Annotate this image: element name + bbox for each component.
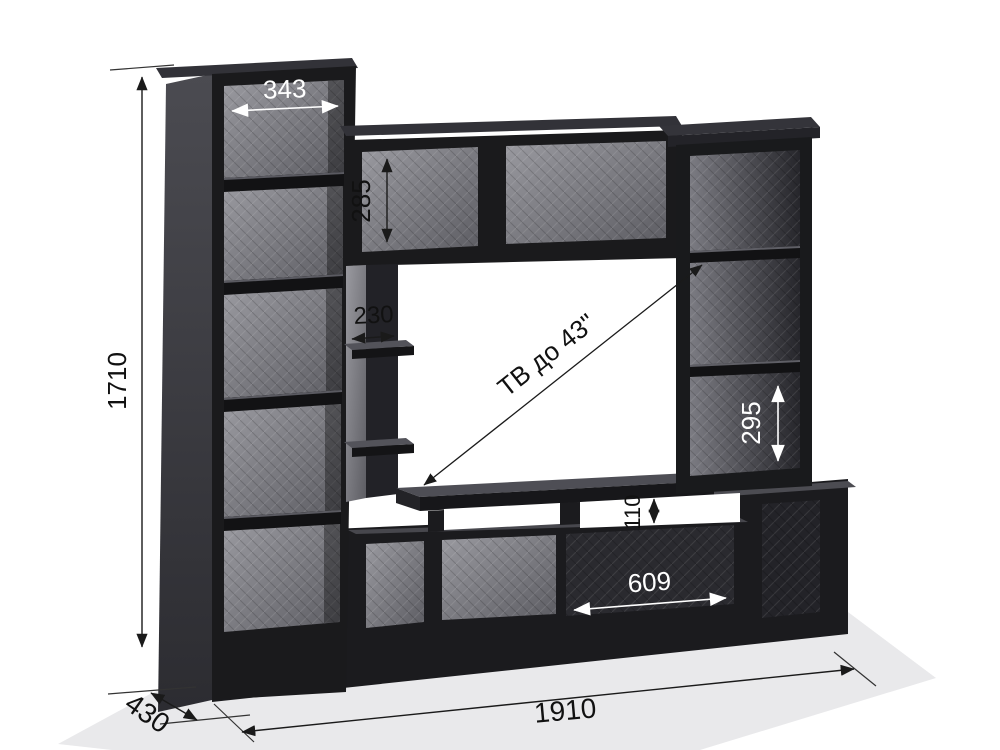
left-column-opening-5-texture bbox=[224, 524, 340, 632]
left-column-opening-3-texture bbox=[224, 288, 342, 398]
dim-label-top-shelf-height: 285 bbox=[346, 179, 376, 222]
tower-side-light bbox=[346, 265, 366, 502]
left-column bbox=[156, 58, 358, 712]
dim-label-tv-shelf-gap: 110 bbox=[620, 494, 645, 529]
left-column-opening-3-shadow bbox=[326, 288, 342, 391]
left-column-opening-5-shadow bbox=[324, 524, 340, 623]
left-column-opening-4-shadow bbox=[325, 404, 341, 511]
furniture-dimension-drawing: 343 285 1710 230 ТВ до 43" 295 bbox=[0, 0, 1000, 750]
tower-panel bbox=[366, 264, 398, 498]
tv-shelf-post-1 bbox=[428, 510, 444, 532]
dim-label-right-opening-height: 295 bbox=[736, 401, 766, 444]
dim-label-total-width: 1910 bbox=[533, 692, 598, 728]
base-niche-1-texture bbox=[366, 541, 424, 628]
left-column-opening-4-texture bbox=[224, 404, 341, 517]
left-column-side-face bbox=[158, 74, 212, 712]
left-column-opening-2-shadow bbox=[327, 186, 343, 275]
dim-tv-diagonal: ТВ до 43" bbox=[424, 265, 702, 485]
top-bridge bbox=[340, 116, 682, 266]
base-niche-2-texture bbox=[442, 535, 556, 620]
tv-shelf-post-2 bbox=[560, 502, 580, 525]
bridge-opening-left-texture bbox=[362, 147, 478, 252]
middle-shelf-tower bbox=[344, 264, 414, 502]
bridge-opening-right-texture bbox=[506, 141, 666, 244]
dim-label-middle-shelf-width: 230 bbox=[353, 301, 394, 330]
left-column-opening-2-texture bbox=[224, 186, 343, 281]
dim-label-left-opening-width: 343 bbox=[262, 73, 306, 104]
tv-wall-unit-diagram: 343 285 1710 230 ТВ до 43" 295 bbox=[0, 0, 1000, 750]
dim-label-total-height: 1710 bbox=[102, 352, 132, 410]
right-stand-niche-texture bbox=[762, 500, 820, 618]
dim-label-bottom-niche-width: 609 bbox=[627, 566, 672, 599]
